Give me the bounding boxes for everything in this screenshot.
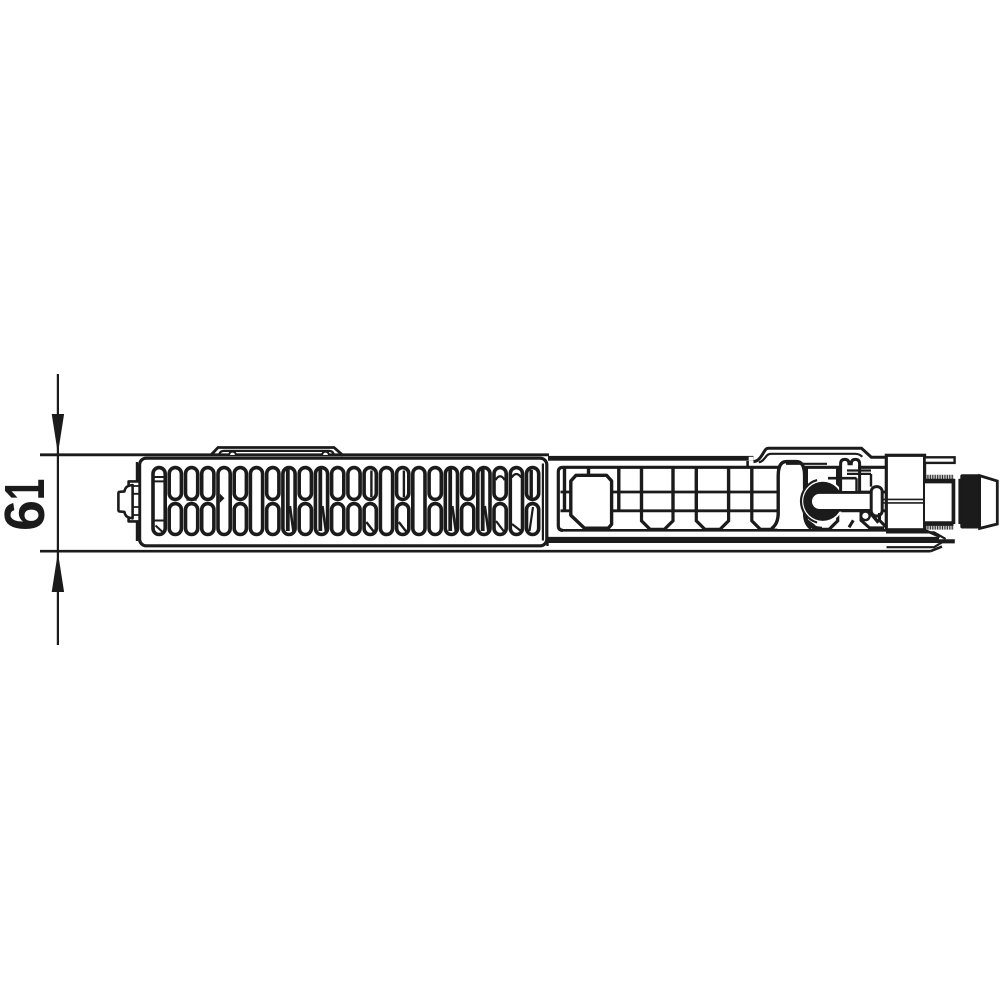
svg-text:1: 1 [0, 479, 57, 501]
svg-text:6: 6 [0, 500, 56, 531]
